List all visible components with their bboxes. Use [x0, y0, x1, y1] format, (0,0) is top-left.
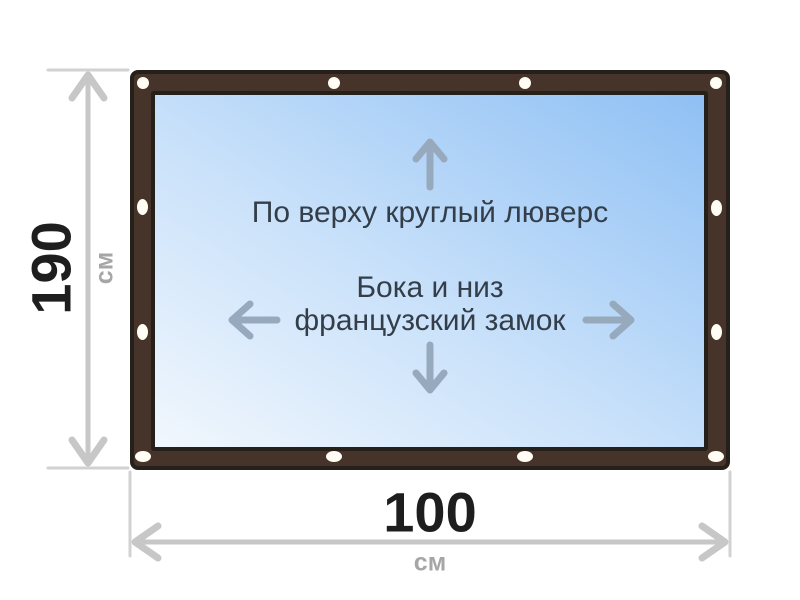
grommet-icon: [326, 451, 342, 462]
width-dimension-unit: см: [414, 549, 446, 578]
grommet-icon: [710, 77, 722, 89]
grommet-icon: [137, 324, 148, 340]
height-dimension-unit: см: [91, 252, 120, 284]
grommet-icon: [137, 199, 148, 215]
grommet-icon: [711, 324, 722, 340]
diagram-canvas: По верху круглый люверс Бока и низ франц…: [0, 0, 800, 600]
note-sides-bottom: Бока и низ французский замок: [294, 271, 565, 337]
grommet-icon: [708, 451, 724, 462]
grommet-icon: [135, 451, 151, 462]
note-sides-line1: Бока и низ: [294, 271, 565, 304]
width-dimension-value: 100: [383, 480, 476, 545]
grommet-icon: [519, 77, 531, 89]
grommet-icon: [328, 77, 340, 89]
grommet-icon: [711, 200, 722, 216]
grommet-icon: [137, 77, 149, 89]
grommet-icon: [517, 451, 533, 462]
tarp-frame: [130, 70, 730, 470]
note-top-grommet: По верху круглый люверс: [252, 196, 608, 230]
note-sides-line2: французский замок: [294, 304, 565, 337]
height-dimension-value: 190: [19, 221, 84, 314]
